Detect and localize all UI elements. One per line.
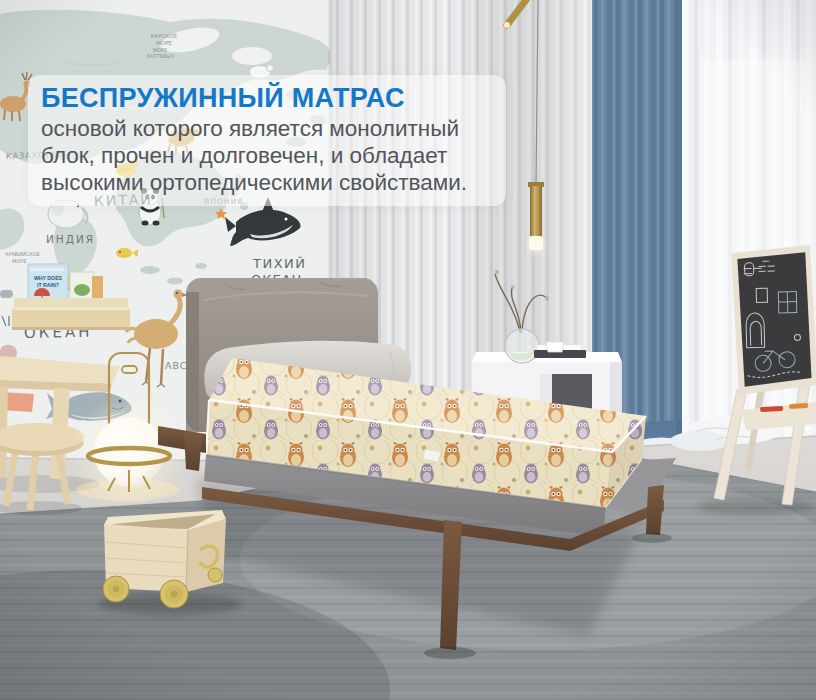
promo-title: БЕСПРУЖИННЫЙ МАТРАС bbox=[41, 82, 492, 115]
promo-line-2: блок, прочен и долговечен, и обладает bbox=[41, 142, 492, 169]
promo-line-3: высокими ортопедическими свойствами. bbox=[41, 169, 492, 196]
promo-overlay: БЕСПРУЖИННЫЙ МАТРАС основой которого явл… bbox=[28, 75, 506, 206]
product-photo: РОССИЯ КАРСКОЕ МОРЕ МОРЕ ЛАПТЕВЫХ КАЗАХС… bbox=[0, 0, 816, 700]
promo-line-1: основой которого является монолитный bbox=[41, 115, 492, 142]
